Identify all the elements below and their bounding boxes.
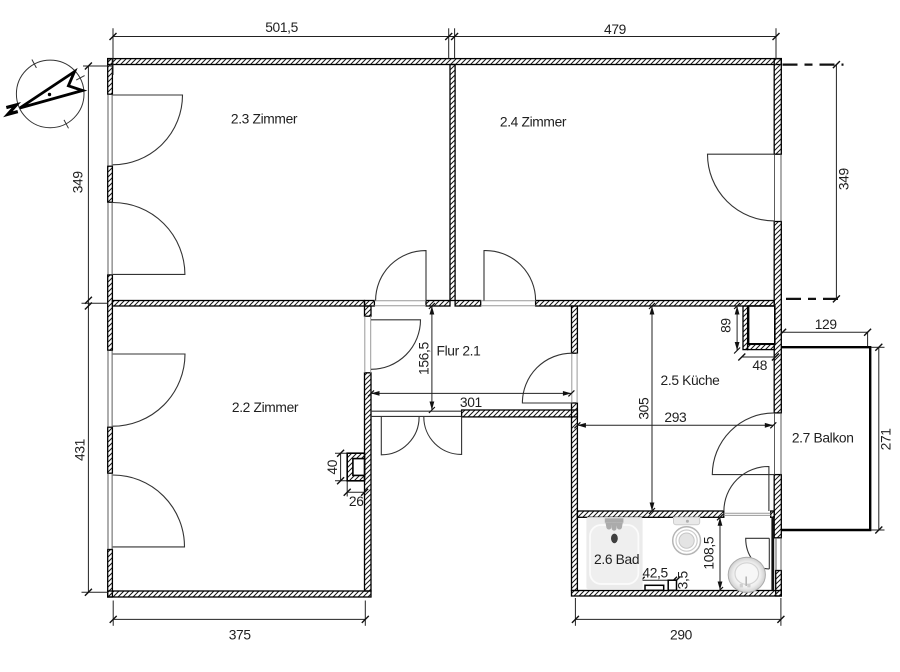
svg-text:349: 349	[71, 171, 86, 194]
svg-text:2.3 Zimmer: 2.3 Zimmer	[231, 111, 298, 126]
svg-text:3,5: 3,5	[675, 571, 690, 590]
svg-text:156,5: 156,5	[417, 342, 432, 375]
svg-text:2.7 Balkon: 2.7 Balkon	[792, 431, 854, 446]
svg-text:Flur 2.1: Flur 2.1	[437, 343, 481, 358]
svg-text:375: 375	[229, 628, 252, 643]
svg-text:290: 290	[670, 628, 693, 643]
svg-text:48: 48	[752, 358, 767, 373]
svg-text:108,5: 108,5	[702, 536, 717, 569]
svg-text:349: 349	[837, 168, 852, 191]
svg-text:501,5: 501,5	[265, 20, 298, 35]
svg-text:40: 40	[325, 459, 340, 474]
svg-text:2.5 Küche: 2.5 Küche	[661, 373, 721, 388]
svg-text:2.2 Zimmer: 2.2 Zimmer	[232, 400, 299, 415]
svg-text:301: 301	[460, 395, 482, 410]
svg-text:271: 271	[879, 428, 894, 450]
svg-text:26: 26	[349, 494, 364, 509]
svg-text:293: 293	[664, 410, 687, 425]
svg-text:479: 479	[604, 22, 627, 37]
svg-text:89: 89	[719, 318, 734, 333]
svg-text:305: 305	[636, 397, 651, 420]
svg-text:2.4 Zimmer: 2.4 Zimmer	[500, 114, 567, 129]
svg-text:129: 129	[815, 317, 838, 332]
svg-text:42,5: 42,5	[642, 565, 668, 580]
svg-text:2.6 Bad: 2.6 Bad	[594, 552, 639, 567]
svg-text:431: 431	[72, 439, 87, 461]
